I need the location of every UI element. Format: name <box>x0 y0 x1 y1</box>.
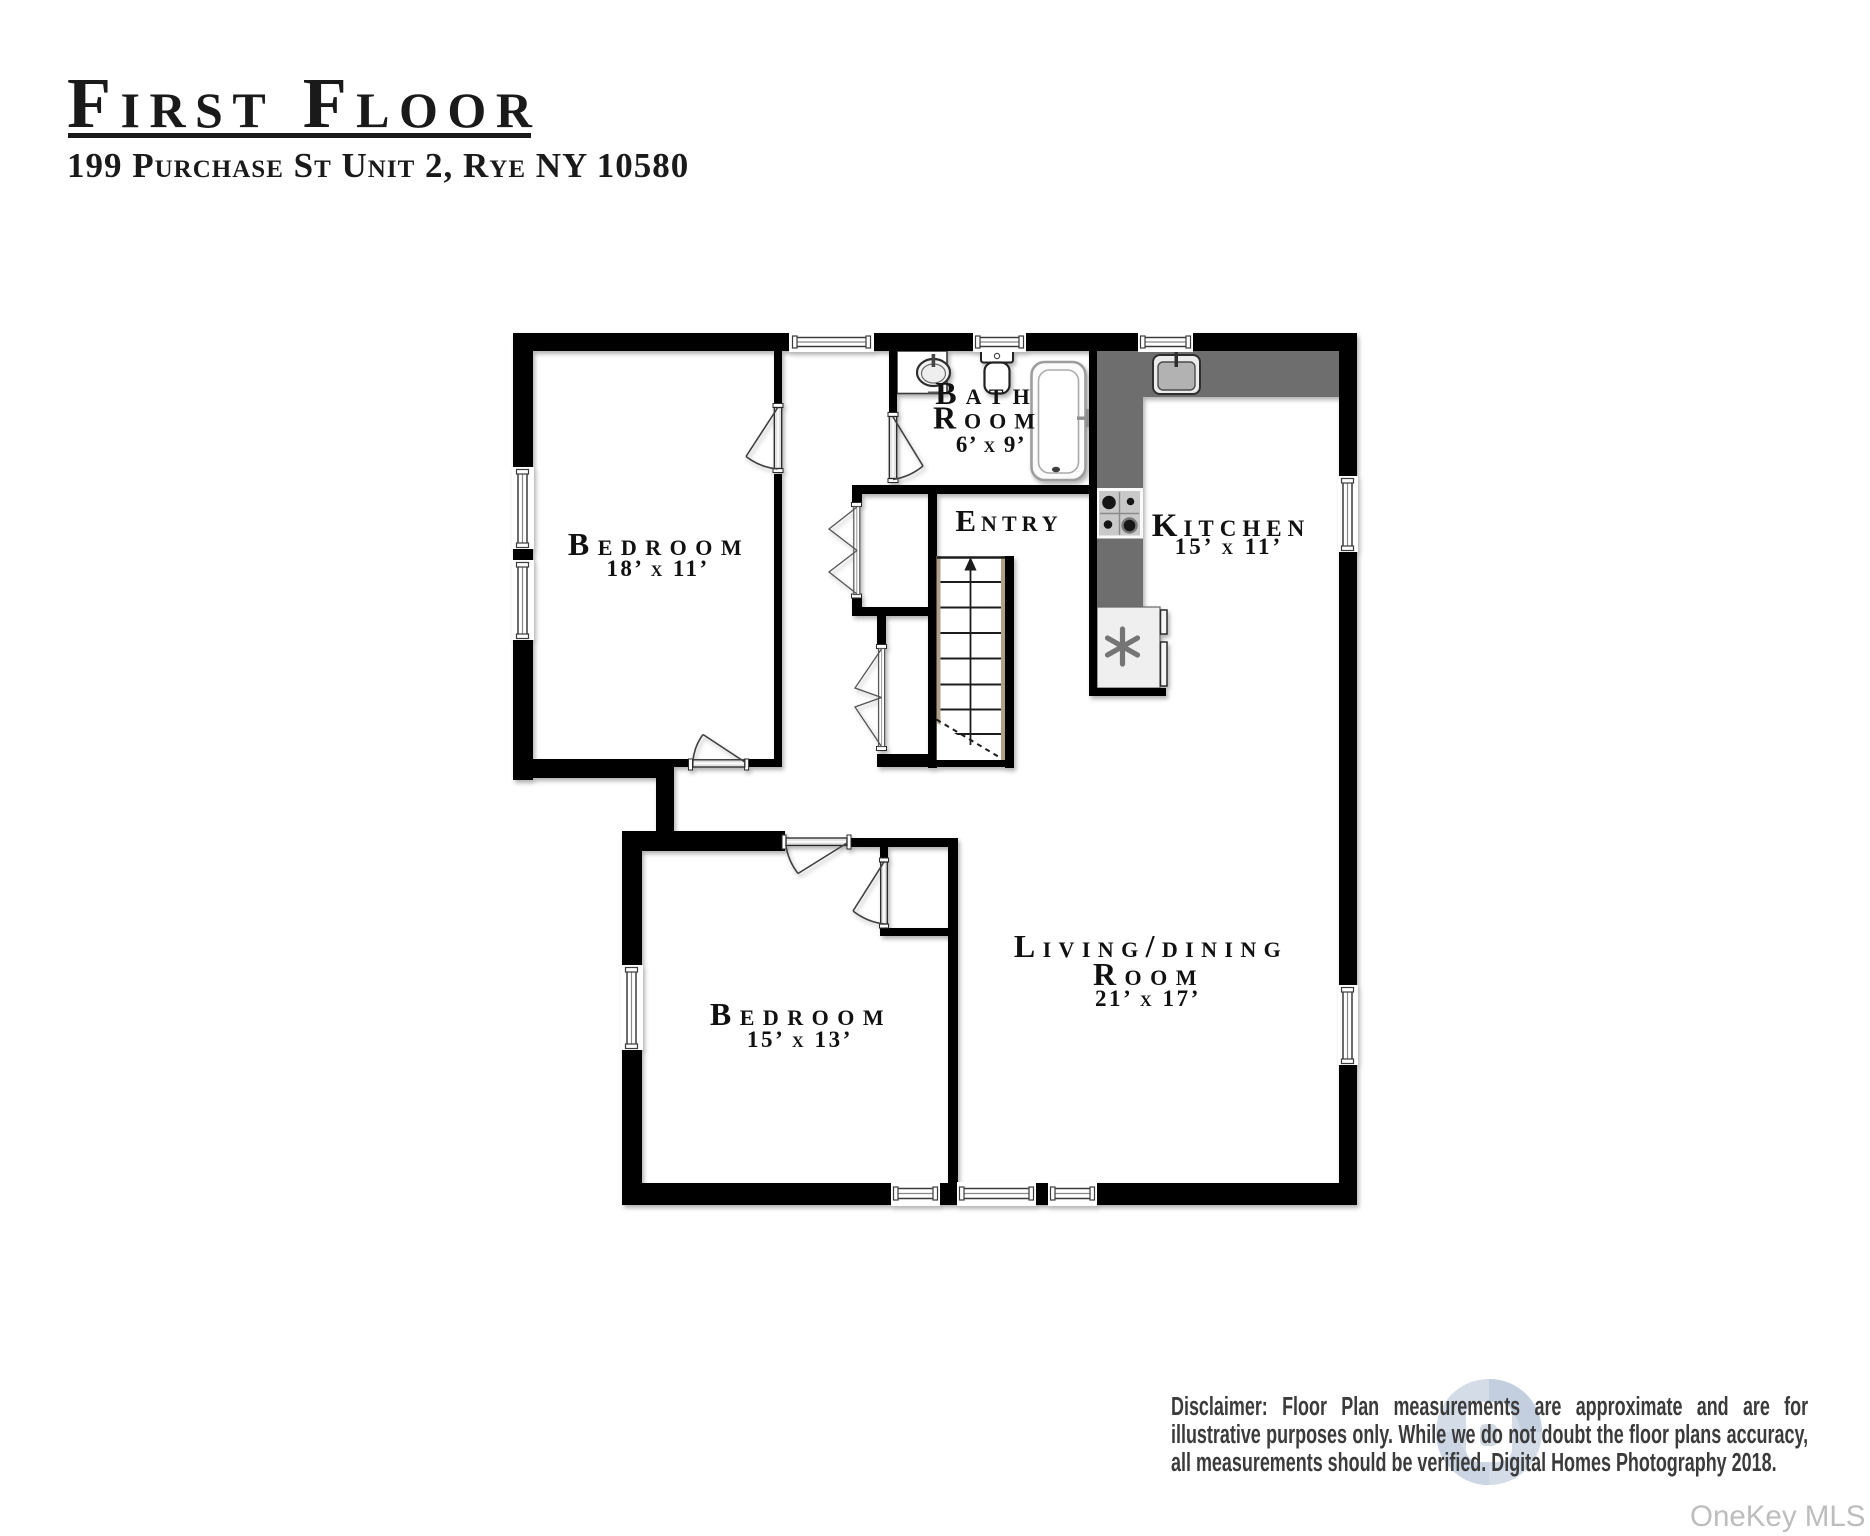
svg-text:Room: Room <box>933 400 1043 436</box>
svg-text:15’ x 11’: 15’ x 11’ <box>1175 534 1283 559</box>
svg-text:First Floor: First Floor <box>67 63 541 143</box>
svg-text:18’ x 11’: 18’ x 11’ <box>607 556 710 581</box>
svg-text:15’ x 13’: 15’ x 13’ <box>747 1027 853 1052</box>
svg-text:Entry: Entry <box>955 503 1062 538</box>
svg-text:199 Purchase St Unit 2, Rye NY: 199 Purchase St Unit 2, Rye NY 10580 <box>67 146 689 185</box>
svg-text:6’ x 9’: 6’ x 9’ <box>956 432 1026 457</box>
svg-text:21’ x 17’: 21’ x 17’ <box>1095 986 1201 1011</box>
